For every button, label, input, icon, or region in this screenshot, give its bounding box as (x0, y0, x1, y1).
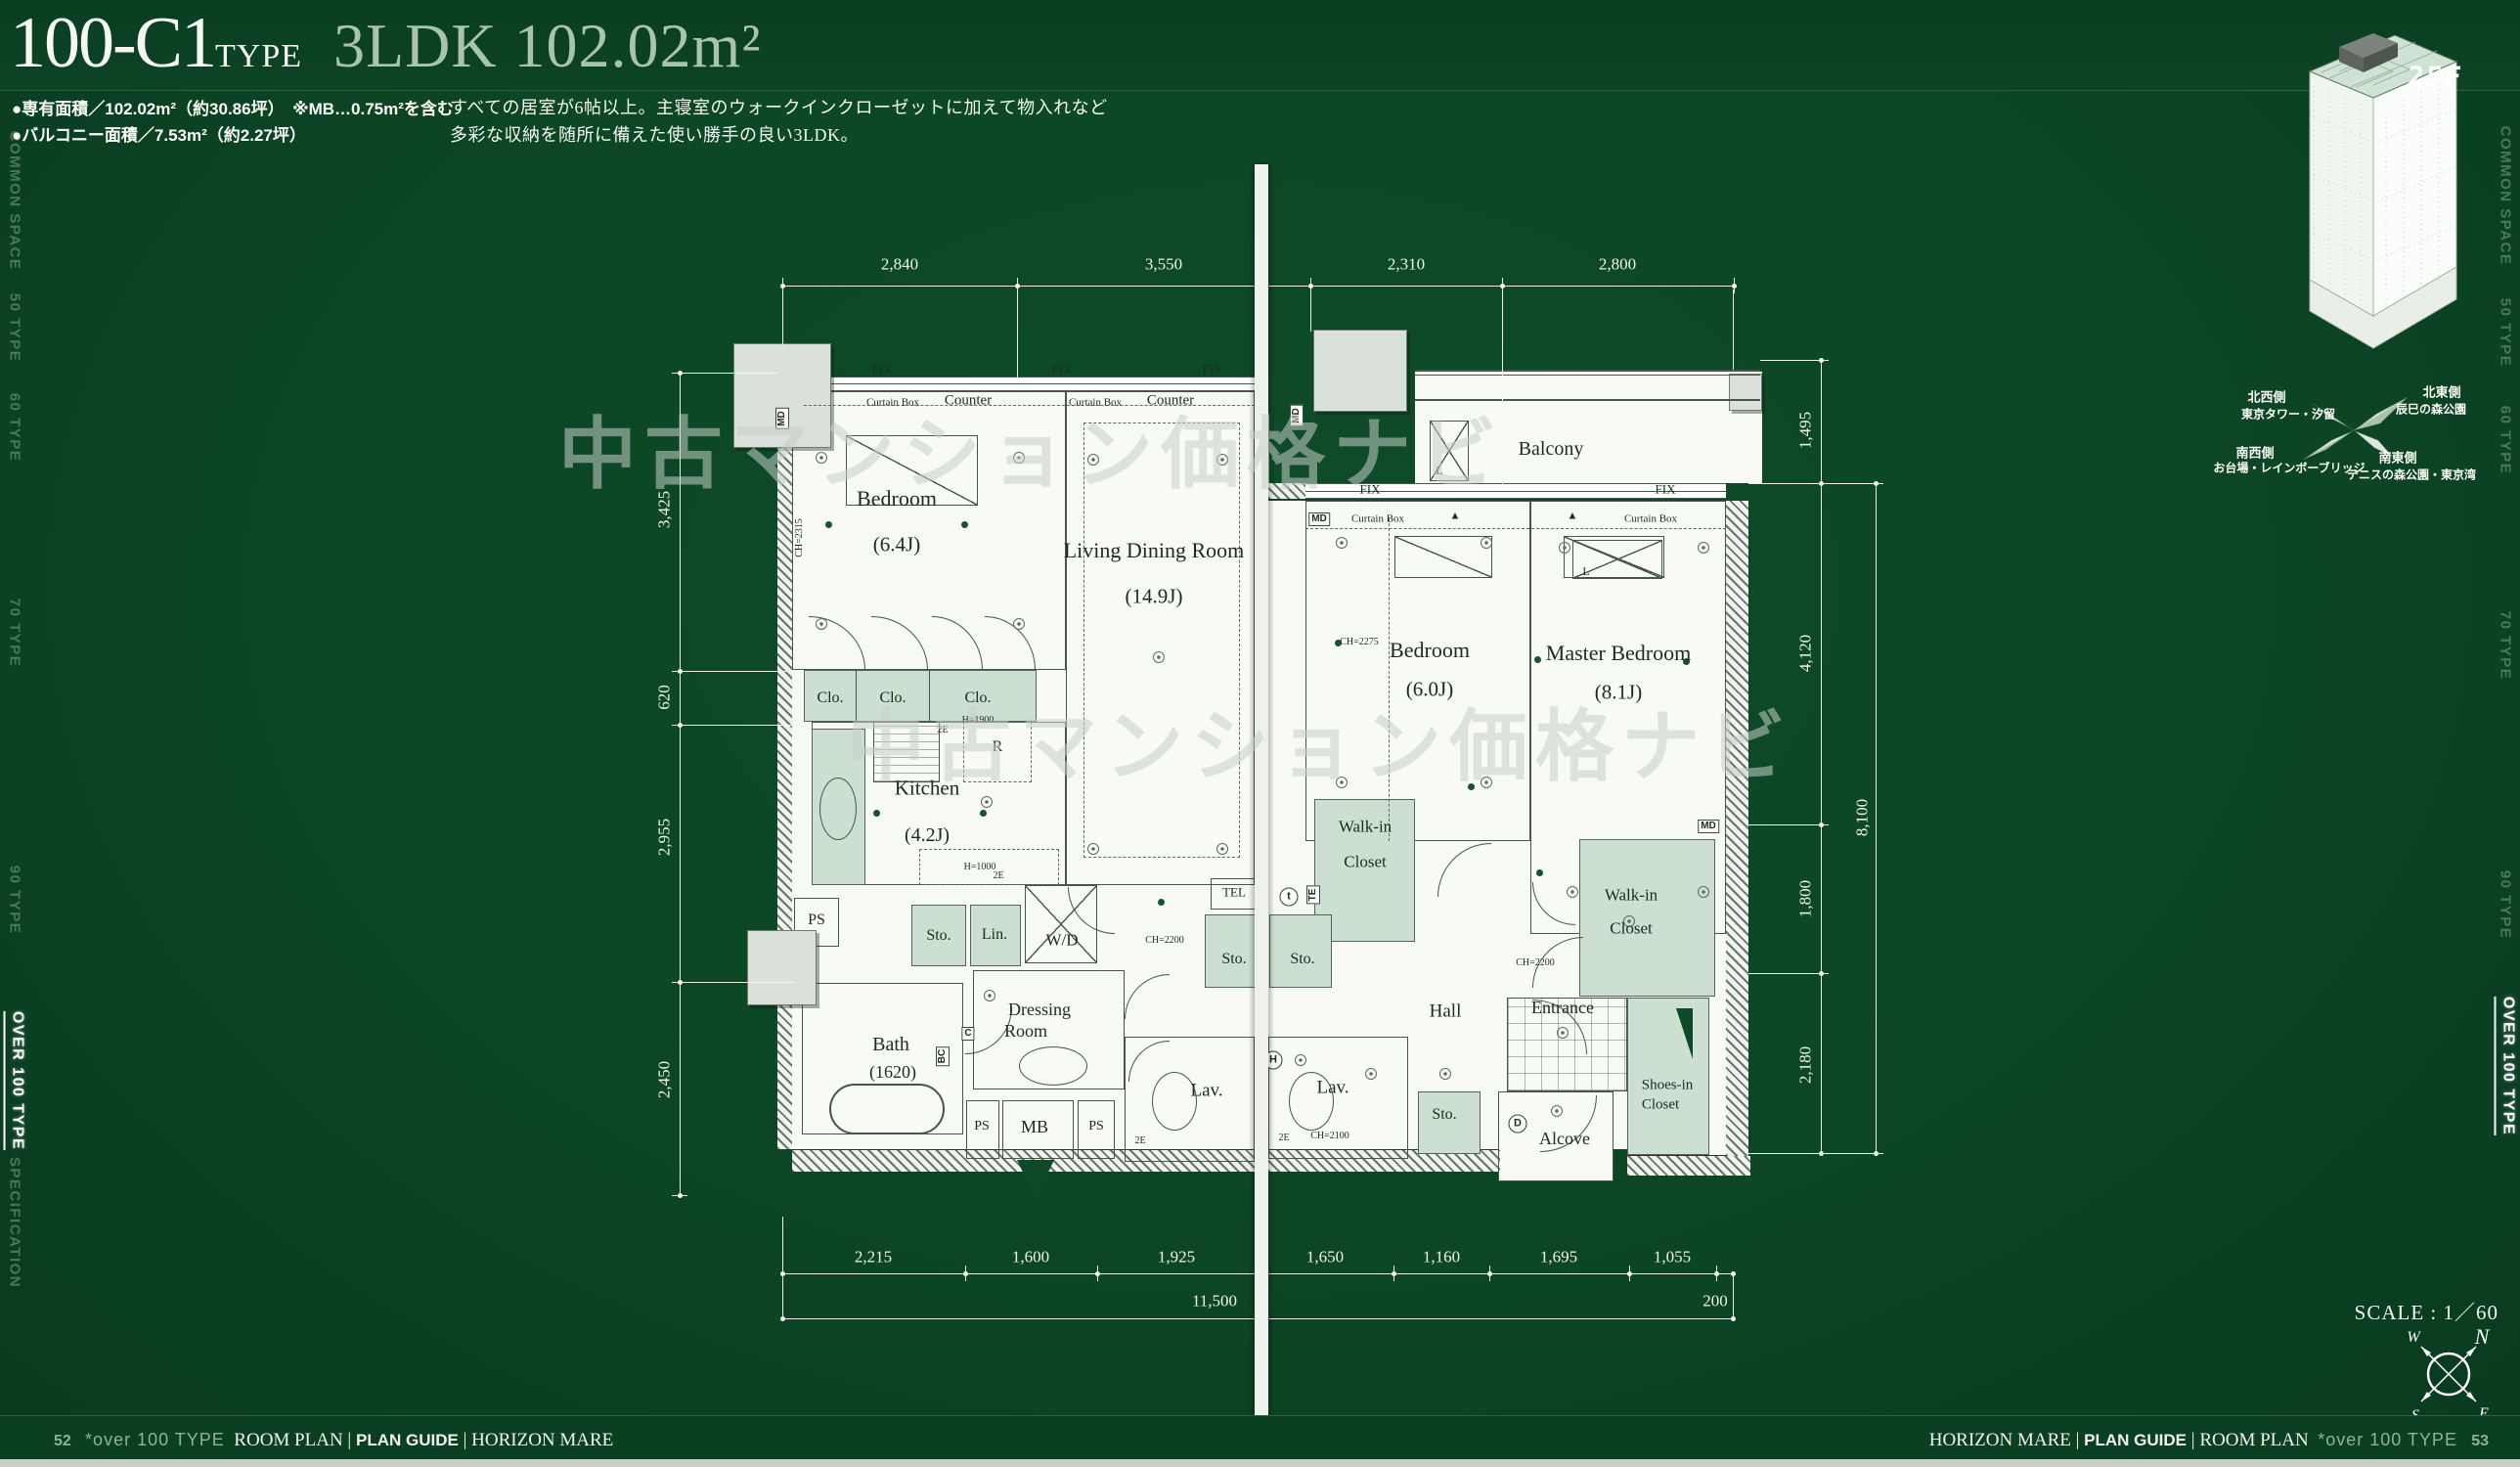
dimension-dot (1731, 1271, 1736, 1276)
e2-3: 2E (1134, 1136, 1145, 1146)
dimension-dot (780, 1316, 785, 1321)
dimension-dot (780, 1271, 785, 1276)
switch-dot-icon (1158, 899, 1165, 906)
wic60-1: Walk-in (1339, 819, 1392, 835)
dimension-line (1748, 483, 1876, 484)
tab-specification: SPECIFICATION (7, 1157, 23, 1288)
dimension-dot (678, 980, 683, 985)
dimension-dot (780, 284, 785, 289)
e2-4: 2E (1278, 1134, 1289, 1143)
room-alcove: Alcove (1539, 1130, 1590, 1147)
room-bath: Bath (872, 1035, 909, 1054)
dimension-line (687, 725, 812, 726)
dimension-line (1017, 289, 1018, 378)
ceiling-light-icon (1698, 886, 1709, 898)
dim-bot-total: 11,500 (1192, 1293, 1237, 1310)
thin-wall-line (1415, 375, 1760, 376)
te-box: TE (1306, 886, 1320, 905)
footer-left: 52 *over 100 TYPE ROOM PLAN | PLAN GUIDE… (54, 1430, 613, 1451)
footer-band: 52 *over 100 TYPE ROOM PLAN | PLAN GUIDE… (0, 1415, 2520, 1460)
dimension-line (782, 1273, 783, 1318)
dimension-dot (1714, 1271, 1719, 1276)
fix-2: FIX (1052, 363, 1073, 376)
room-entrance: Entrance (1531, 999, 1594, 1016)
dimension-dot (1819, 971, 1824, 976)
room-wd: W/D (1045, 932, 1078, 949)
structural-pillar (747, 930, 817, 1005)
door-wedge-icon (1017, 1160, 1054, 1199)
tab-common-space: COMMON SPACE (7, 131, 23, 271)
ceiling-light-icon (1557, 1027, 1569, 1039)
dim-right-3: 1,800 (1797, 880, 1814, 917)
page-title: 100-C1TYPE 3LDK 102.02m² (10, 2, 762, 85)
dimension-dot (678, 1193, 683, 1198)
fixture-oval-icon (1019, 1046, 1087, 1086)
dim-bot-offset: 200 (1702, 1293, 1728, 1310)
dim-left-4: 2,450 (656, 1061, 673, 1098)
bc-box: BC (936, 1046, 950, 1066)
page-fold-gutter (1255, 164, 1268, 1467)
tab-50-type: 50 TYPE (7, 293, 23, 363)
dimension-line (782, 289, 783, 345)
dashed-line (1305, 528, 1726, 529)
dimension-line (1733, 1273, 1734, 1318)
dimension-line (1876, 483, 1877, 1153)
ceiling-light-icon (1551, 1105, 1563, 1117)
brochure-page: 100-C1TYPE 3LDK 102.02m² ●専有面積／102.02m²（… (0, 0, 2520, 1467)
tab-over-100-type: over 100 TYPE (2495, 997, 2517, 1135)
bed-icon (1394, 536, 1492, 578)
dim-bot-2: 1,600 (1012, 1249, 1049, 1266)
switch-dot-icon (825, 521, 832, 528)
ps-3: PS (1088, 1120, 1104, 1134)
ceiling-light-icon (1295, 1054, 1306, 1066)
room-ldr: Living Dining Room (1064, 540, 1245, 561)
wic60-2: Closet (1344, 854, 1386, 870)
switch-dot-icon (873, 810, 880, 817)
dim-bot-6: 1,695 (1540, 1249, 1577, 1266)
description-line-1: すべての居室が6帖以上。主寝室のウォークインクローゼットに加えて物入れなど (450, 94, 1108, 119)
dimension-dot (1500, 284, 1505, 289)
dimension-dot (1732, 284, 1737, 289)
compass-nw-dir: 北西側 (2247, 387, 2285, 406)
ceiling-light-icon (1481, 537, 1492, 549)
floor-label: 25F (2406, 61, 2464, 93)
dimension-line (1310, 289, 1311, 332)
tab-50-type: 50 TYPE (2498, 298, 2514, 368)
wall-hatch (1627, 1156, 1750, 1176)
north-compass-icon: N W S E (2404, 1322, 2501, 1430)
dimension-line (1821, 360, 1822, 1153)
sto-left: Sto. (926, 928, 951, 944)
ceiling-light-icon (1336, 537, 1348, 549)
dim-right-1: 1,495 (1797, 412, 1814, 449)
room-kitchen-size: (4.2J) (905, 825, 950, 845)
dimension-line (687, 671, 804, 672)
ceiling-light-icon (1013, 618, 1025, 630)
dimension-dot (678, 669, 683, 674)
dim-right-2: 4,120 (1797, 635, 1814, 672)
dimension-dot (1819, 1151, 1824, 1156)
tab-60-type: 60 TYPE (2498, 406, 2514, 475)
shoes-1: Shoes-in (1642, 1079, 1694, 1093)
room-dressing-2: Room (1004, 1022, 1047, 1040)
ceiling-light-icon (1567, 886, 1578, 898)
clo-1: Clo. (817, 690, 843, 706)
fix-3: FIX (1203, 363, 1223, 376)
footer-right: HORIZON MARE | PLAN GUIDE | ROOM PLAN *o… (1929, 1430, 2489, 1451)
shoes-2: Closet (1642, 1098, 1679, 1113)
compass-ne-place: 辰巳の森公園 (2396, 401, 2466, 418)
dimension-dot (1731, 1316, 1736, 1321)
tab-70-type: 70 TYPE (7, 599, 23, 668)
tab-90-type: 90 TYPE (7, 866, 23, 935)
ceiling-light-icon (1365, 1068, 1377, 1080)
unit-type-title: 100-C1 (10, 3, 215, 83)
dimension-dot (1874, 1151, 1879, 1156)
compass-se-place: テニスの森公園・東京湾 (2347, 467, 2476, 483)
switch-dot-icon (1534, 656, 1541, 663)
curtain-4: Curtain Box (1624, 514, 1677, 525)
tri-1: ▲ (1450, 511, 1461, 522)
ps-1: PS (808, 912, 825, 928)
ch-2275: CH=2275 (1340, 638, 1379, 647)
dimension-dot (1874, 481, 1879, 486)
compass-sw-place: お台場・レインボーブリッジ (2213, 460, 2365, 476)
fix-1: FIX (872, 363, 893, 376)
dimension-line (1748, 824, 1821, 825)
bed-icon (1564, 536, 1664, 578)
curtain-3: Curtain Box (1351, 514, 1404, 525)
arrow-slide: ← (837, 363, 849, 375)
dimension-line (1760, 360, 1821, 361)
ch-2100: CH=2100 (1310, 1132, 1349, 1141)
dim-left-3: 2,955 (656, 819, 673, 856)
dim-bot-5: 1,160 (1423, 1249, 1460, 1266)
tab-60-type: 60 TYPE (7, 393, 23, 463)
unit-spec: 3LDK 102.02m² (333, 11, 762, 80)
closet-area (1418, 1091, 1481, 1154)
lin-left: Lin. (982, 927, 1007, 943)
switch-dot-icon (961, 521, 968, 528)
dimension-dot (678, 371, 683, 376)
thin-wall-line (1415, 370, 1760, 372)
sto-mid-left: Sto. (1221, 952, 1246, 967)
dim-right-4: 2,180 (1797, 1046, 1814, 1084)
dimension-line (782, 1217, 783, 1273)
room-hall: Hall (1430, 1002, 1462, 1021)
compass-ne-dir: 北東側 (2422, 382, 2460, 401)
description-line-2: 多彩な収納を随所に備えた使い勝手の良い3LDK。 (450, 121, 859, 147)
ceiling-light-icon (1087, 843, 1099, 855)
unit-type-suffix: TYPE (215, 38, 302, 74)
room-bedroom60: Bedroom (1390, 640, 1470, 661)
dim-top-3: 2,310 (1388, 256, 1425, 273)
room-master: Master Bedroom (1546, 643, 1691, 664)
tab-common-space: COMMON SPACE (2498, 126, 2514, 266)
dim-right-total: 8,100 (1854, 799, 1871, 836)
wicm-1: Walk-in (1605, 887, 1658, 904)
room-ldr-size: (14.9J) (1126, 587, 1183, 607)
room-bedroom64-size: (6.4J) (873, 535, 920, 556)
ch-2200a: CH=2200 (1145, 936, 1184, 946)
wicm-2: Closet (1610, 920, 1652, 937)
closet-area (1627, 998, 1709, 1155)
dim-top-1: 2,840 (881, 256, 918, 273)
switch-dot-icon (1536, 869, 1543, 876)
bathtub-icon (829, 1084, 945, 1134)
room-bath-size: (1620) (869, 1063, 916, 1081)
e2-2: 2E (993, 871, 1003, 881)
md-3: MD (1308, 512, 1330, 526)
dimension-line (687, 373, 777, 374)
circle-t: t (1280, 888, 1299, 907)
dimension-dot (1627, 1271, 1632, 1276)
tab-90-type: 90 TYPE (2498, 870, 2514, 940)
h-1000: H=1000 (964, 863, 996, 872)
structural-pillar (1729, 374, 1762, 411)
dimension-line (687, 982, 794, 983)
sto-mid-right: Sto. (1290, 952, 1314, 967)
dimension-dot (963, 1271, 968, 1276)
ceiling-light-icon (816, 618, 827, 630)
dimension-line (1733, 289, 1734, 370)
switch-dot-icon (980, 810, 987, 817)
dim-bot-3: 1,925 (1158, 1249, 1195, 1266)
ps-2: PS (974, 1120, 990, 1134)
dimension-line (1748, 1153, 1876, 1154)
area-bullet-1: ●専有面積／102.02m²（約30.86坪） ※MB…0.75m²を含む (12, 95, 454, 119)
fix-5: FIX (1656, 483, 1676, 496)
dimension-dot (1308, 284, 1313, 289)
dim-bot-7: 1,055 (1654, 1249, 1691, 1266)
dim-left-2: 620 (656, 685, 673, 710)
compass-se-dir: 南東側 (2378, 448, 2416, 467)
sto-hall: Sto. (1432, 1107, 1456, 1123)
ceiling-light-icon (1153, 651, 1165, 663)
dim-top-2: 3,550 (1145, 256, 1182, 273)
compass-n-letter: N (2474, 1324, 2491, 1349)
dim-bot-4: 1,650 (1306, 1249, 1344, 1266)
dimension-dot (1819, 481, 1824, 486)
dimension-dot (1819, 358, 1824, 363)
ceiling-light-icon (1216, 843, 1228, 855)
ceiling-light-icon (981, 796, 993, 808)
ceiling-light-icon (1698, 542, 1709, 554)
room-dressing-1: Dressing (1008, 1000, 1071, 1018)
area-bullet-2: ●バルコニー面積／7.53m²（約2.27坪） (12, 121, 306, 146)
dim-bot-1: 2,215 (855, 1249, 892, 1266)
header-band: 100-C1TYPE 3LDK 102.02m² (0, 0, 2520, 91)
wall-hatch (1726, 501, 1748, 1156)
compass-w-letter: W (2407, 1329, 2421, 1346)
watermark-2: 中古マンション価格ナビ (847, 684, 1793, 797)
dimension-dot (1015, 284, 1020, 289)
md-4: MD (1698, 820, 1719, 833)
mb-label: MB (1021, 1118, 1048, 1135)
watermark-1: 中古マンション価格ナビ (558, 391, 1505, 505)
page-bottom-edge (0, 1459, 2520, 1467)
tab-over-100-type: over 100 TYPE (4, 1011, 26, 1150)
tel-label: TEL (1222, 886, 1246, 899)
room-lav-left: Lav. (1190, 1082, 1222, 1100)
ceiling-light-icon (984, 990, 995, 1001)
dimension-dot (1095, 1271, 1100, 1276)
ch-2200b: CH=2200 (1516, 958, 1555, 968)
page-number-right: 53 (2471, 1433, 2489, 1449)
dimension-line (1748, 973, 1821, 974)
ch-2315: CH=2315 (795, 518, 805, 557)
ceiling-light-icon (1439, 1068, 1451, 1080)
c-box: C (961, 1027, 974, 1041)
compass-nw-place: 東京タワー・汐留 (2241, 406, 2335, 422)
closet-area (1579, 839, 1715, 997)
dim-top-4: 2,800 (1599, 256, 1636, 273)
page-number-left: 52 (54, 1433, 71, 1449)
tri-2: ▲ (1568, 511, 1578, 522)
room-lav-right: Lav. (1316, 1079, 1348, 1097)
tab-70-type: 70 TYPE (2498, 611, 2514, 681)
room-balcony: Balcony (1519, 439, 1584, 459)
window-band (831, 377, 1255, 391)
dimension-dot (678, 723, 683, 728)
ac-2: L (1582, 565, 1589, 577)
wall-hatch (777, 391, 792, 1149)
dimension-dot (1392, 1271, 1396, 1276)
circle-d: D (1509, 1115, 1527, 1134)
dimension-dot (1487, 1271, 1492, 1276)
dimension-dot (1819, 822, 1824, 827)
ceiling-light-icon (1559, 542, 1570, 554)
